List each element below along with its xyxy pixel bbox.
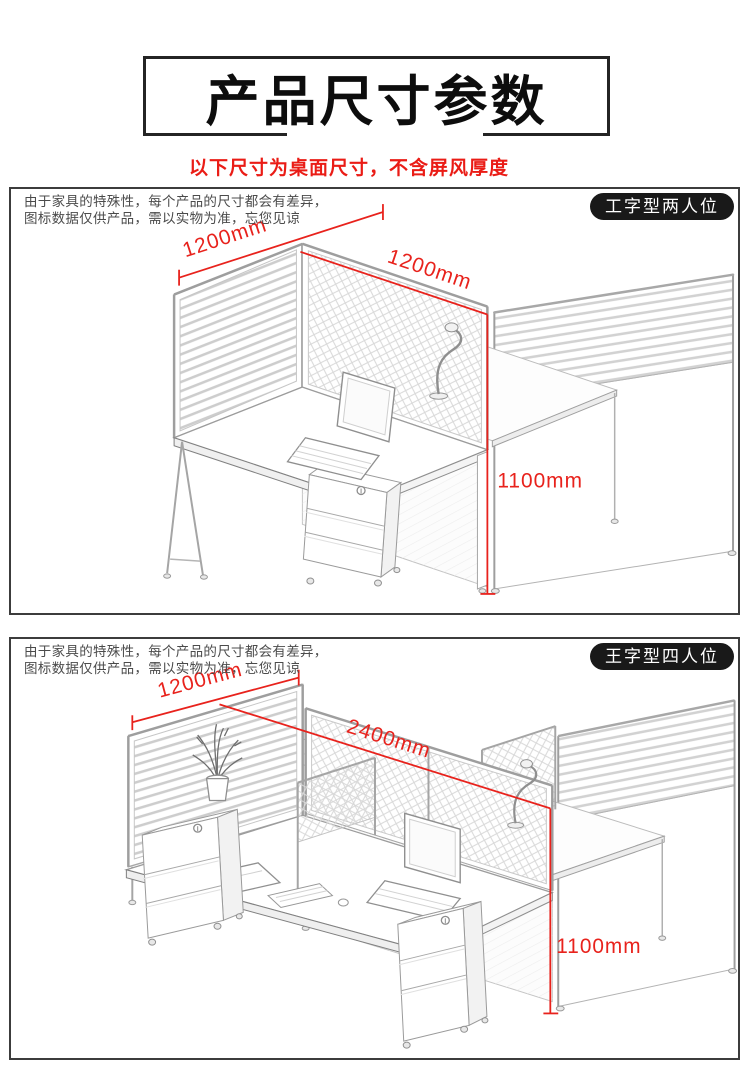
disclaimer-text: 由于家具的特殊性，每个产品的尺寸都会有差异， 图标数据仅供产品，需以实物为准，忘… — [24, 643, 328, 677]
badge-four-seat: 王字型四人位 — [590, 643, 734, 670]
mouse — [338, 899, 348, 906]
lock-icon — [357, 487, 365, 495]
drawer-pedestal-left — [142, 809, 243, 945]
four-seat-drawing: 1200mm 2400mm 1100mm — [11, 639, 738, 1058]
lock-icon — [194, 824, 202, 832]
right-end-screen — [491, 275, 736, 594]
disclaimer-line-2: 图标数据仅供产品，需以实物为准，忘您见谅 — [24, 660, 328, 677]
disclaimer-line-1: 由于家具的特殊性，每个产品的尺寸都会有差异， — [24, 193, 328, 210]
drawer-pedestal-right — [398, 901, 488, 1048]
product-dimension-sheet: 产品尺寸参数 以下尺寸为桌面尺寸，不含屏风厚度 由于家具的特殊性，每个产品的尺寸… — [0, 0, 750, 1068]
disclaimer-text: 由于家具的特殊性，每个产品的尺寸都会有差异， 图标数据仅供产品，需以实物为准，忘… — [24, 193, 328, 227]
subtitle-note: 以下尺寸为桌面尺寸，不含屏风厚度 — [0, 153, 698, 180]
panel-two-seat: 由于家具的特殊性，每个产品的尺寸都会有差异， 图标数据仅供产品，需以实物为准，忘… — [9, 187, 740, 615]
two-seat-drawing: 1200mm 1200mm 1100mm — [11, 189, 738, 613]
drawer-pedestal — [303, 465, 400, 586]
page-title: 产品尺寸参数 — [146, 59, 607, 133]
panel-four-seat: 由于家具的特殊性，每个产品的尺寸都会有差异， 图标数据仅供产品，需以实物为准，忘… — [9, 637, 740, 1060]
title-box: 产品尺寸参数 — [143, 56, 610, 136]
dim-height-label: 1100mm — [497, 470, 583, 493]
disclaimer-line-1: 由于家具的特殊性，每个产品的尺寸都会有差异， — [24, 643, 328, 660]
disclaimer-line-2: 图标数据仅供产品，需以实物为准，忘您见谅 — [24, 210, 328, 227]
dim-height-label: 1100mm — [556, 935, 641, 958]
lock-icon — [441, 916, 449, 924]
badge-two-seat: 工字型两人位 — [590, 193, 734, 220]
